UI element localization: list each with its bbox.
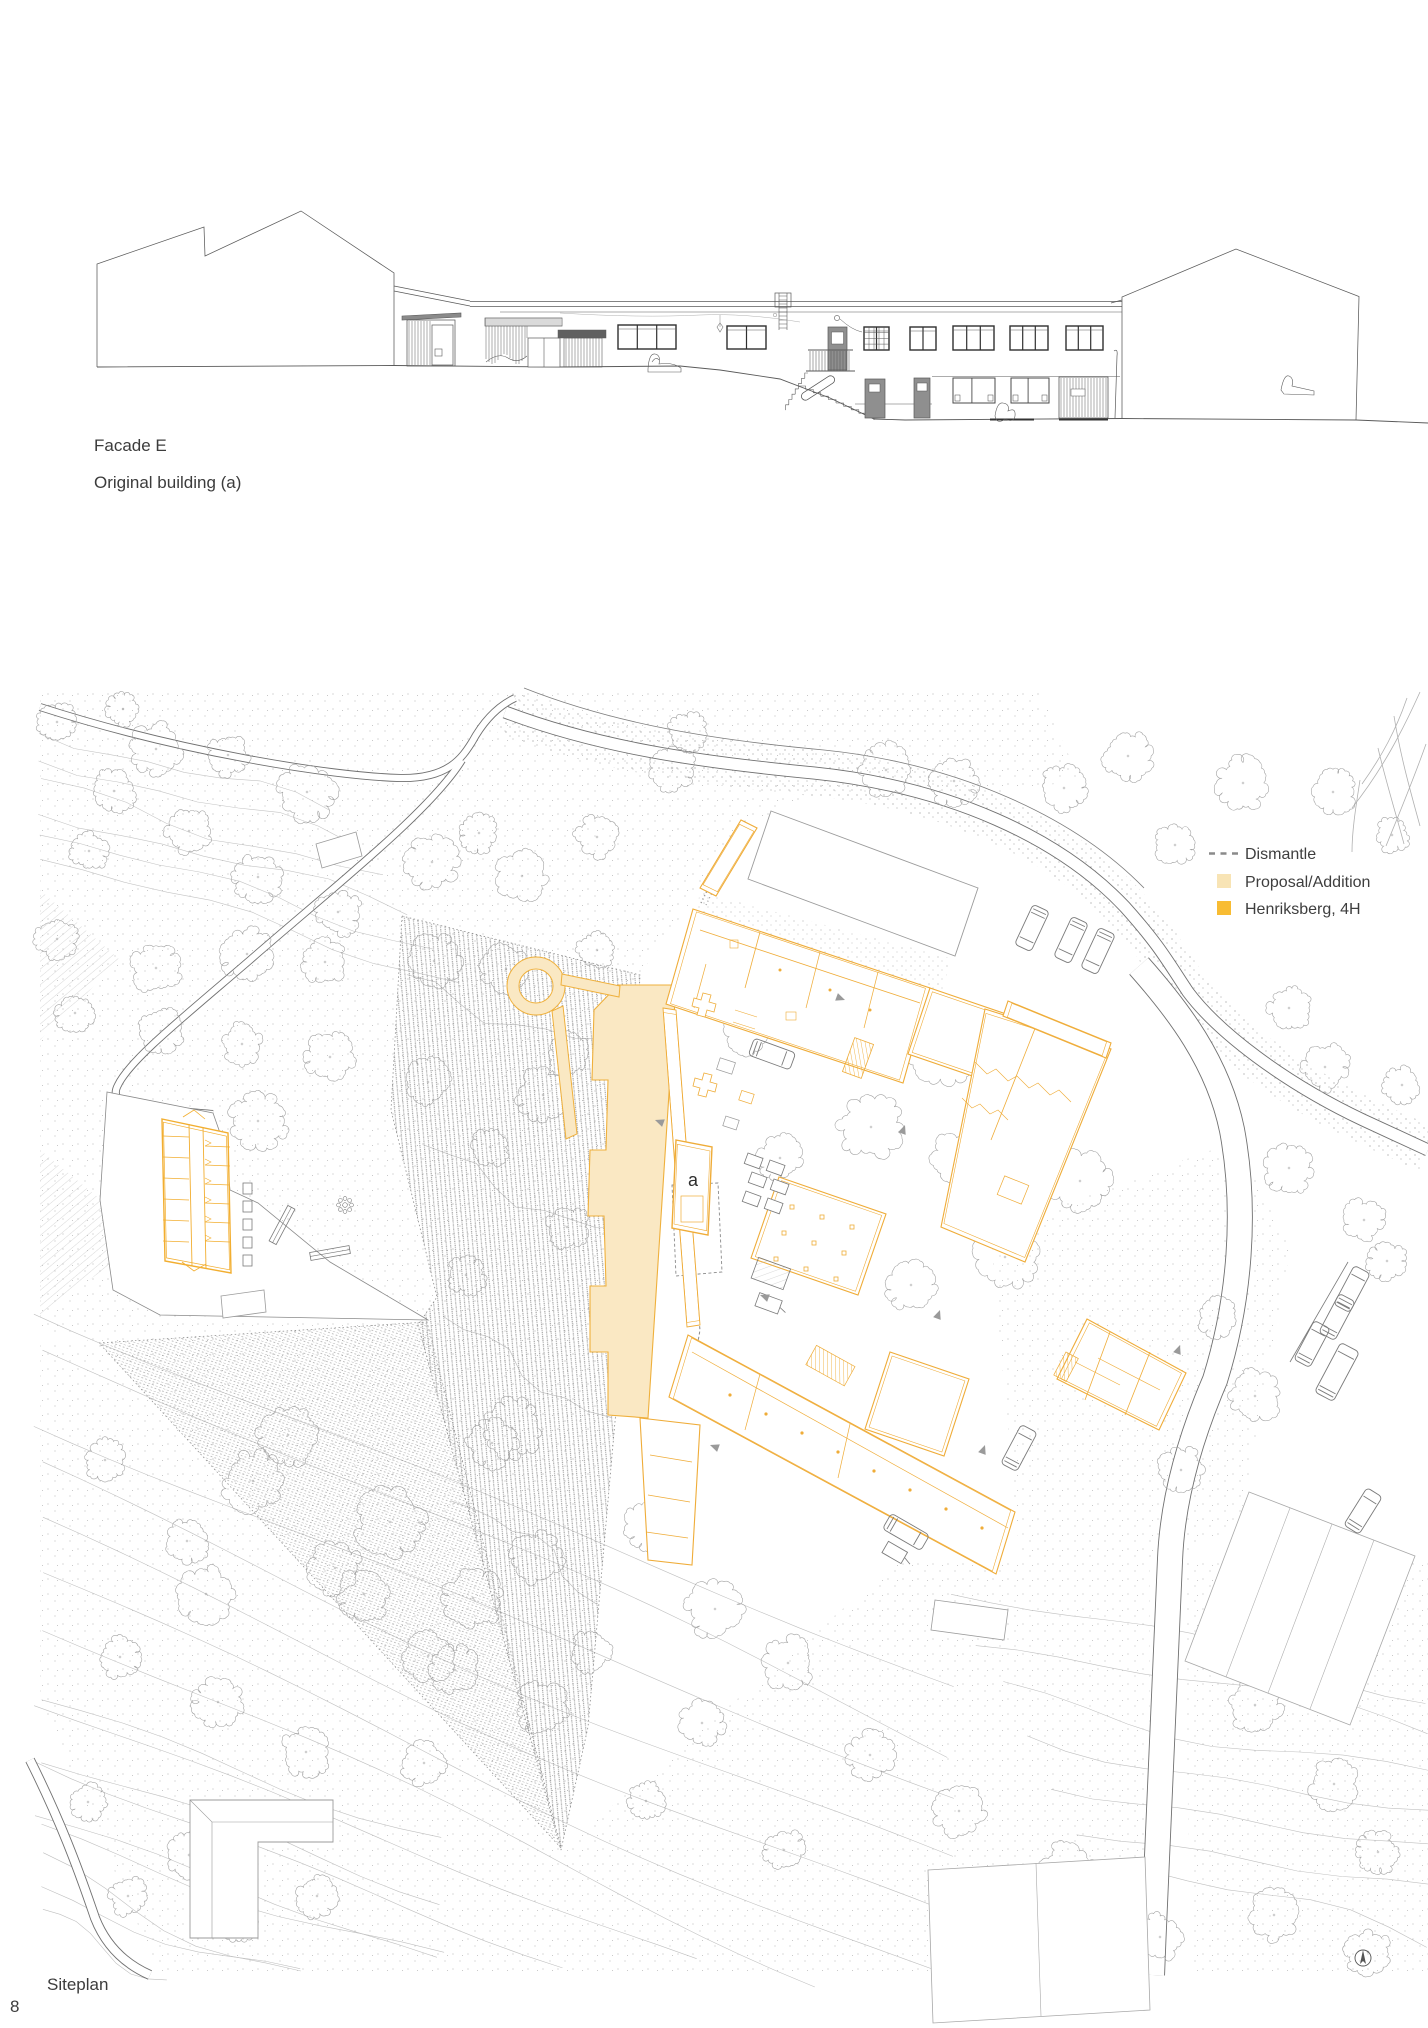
svg-text:a: a bbox=[688, 1170, 699, 1190]
svg-text:Proposal/Addition: Proposal/Addition bbox=[1245, 874, 1370, 891]
svg-text:Original building (a): Original building (a) bbox=[94, 473, 241, 492]
svg-text:Siteplan: Siteplan bbox=[47, 1975, 108, 1994]
svg-text:8: 8 bbox=[10, 1997, 19, 2016]
svg-text:Facade E: Facade E bbox=[94, 436, 167, 455]
svg-text:Henriksberg, 4H: Henriksberg, 4H bbox=[1245, 901, 1361, 918]
svg-text:Dismantle: Dismantle bbox=[1245, 846, 1316, 863]
